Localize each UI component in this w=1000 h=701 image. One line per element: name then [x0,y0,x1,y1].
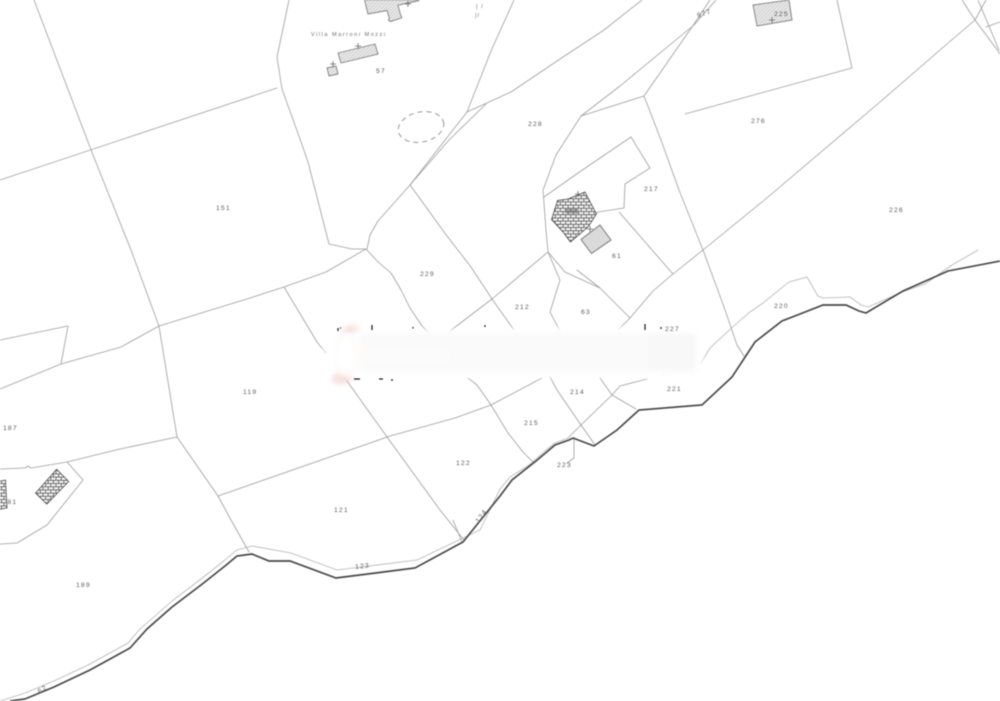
svg-text:228: 228 [528,121,543,128]
svg-text:217: 217 [644,186,659,193]
svg-text:81: 81 [8,499,18,506]
svg-text:227: 227 [665,326,680,333]
svg-text:225: 225 [774,11,789,18]
svg-text:| /: | / [476,4,484,10]
svg-text:214: 214 [570,389,585,396]
svg-text:223: 223 [557,462,572,469]
svg-text:226: 226 [889,207,904,214]
svg-text:229: 229 [420,271,435,278]
svg-text:276: 276 [751,118,766,125]
svg-text:121: 121 [334,507,349,514]
svg-text:63: 63 [581,309,591,316]
svg-text:|/: |/ [475,13,480,19]
svg-text:151: 151 [216,205,231,212]
svg-text:119: 119 [243,389,257,396]
svg-text:189: 189 [76,582,91,589]
svg-text:122: 122 [456,460,471,467]
svg-text:Villa Marroni Mozzi: Villa Marroni Mozzi [311,32,387,38]
svg-text:221: 221 [667,386,682,393]
svg-text:220: 220 [774,303,789,310]
svg-text:61: 61 [612,253,622,260]
svg-text:57: 57 [376,68,386,75]
svg-text:212: 212 [515,304,530,311]
svg-text:187: 187 [3,425,18,432]
svg-text:215: 215 [524,420,539,427]
